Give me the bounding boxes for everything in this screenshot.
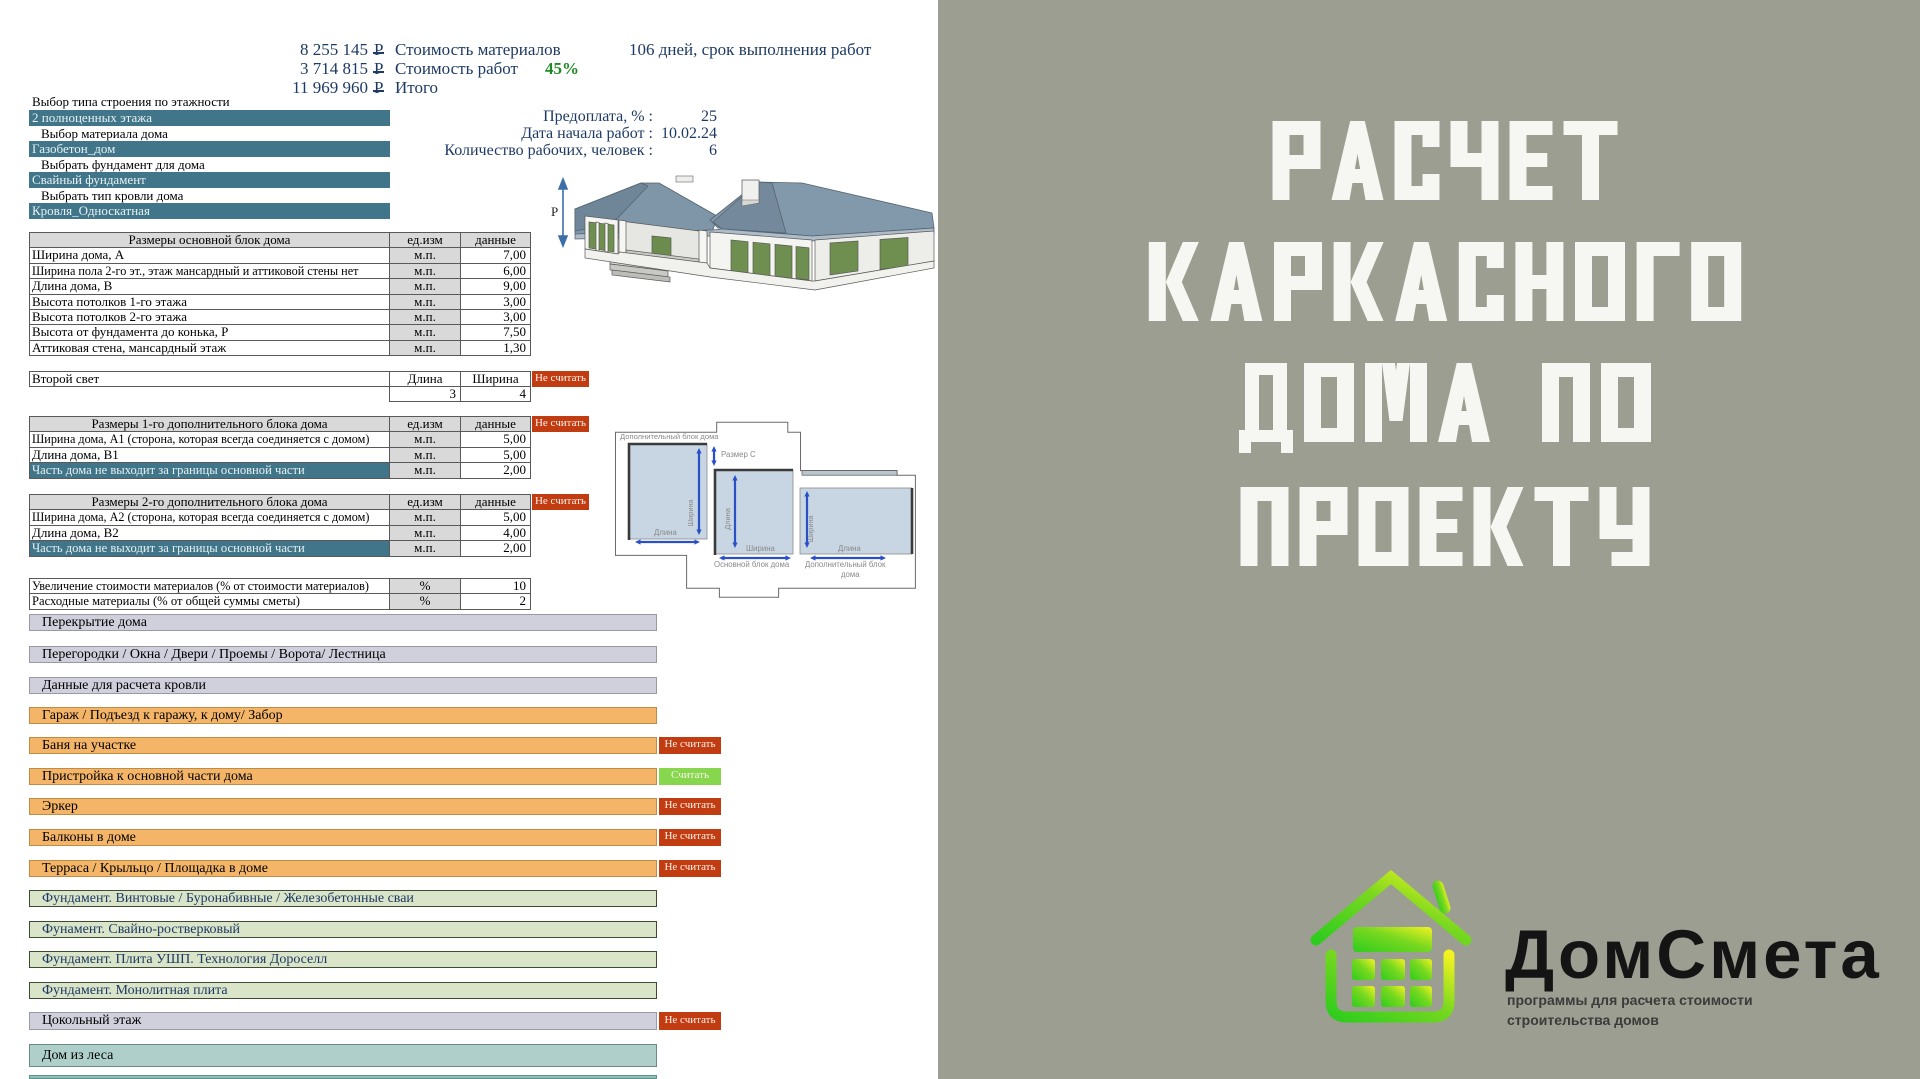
- svg-text:Размер С: Размер С: [721, 450, 756, 459]
- svg-text:Ширина: Ширина: [746, 544, 775, 553]
- svg-text:Длина: Длина: [654, 528, 677, 537]
- svg-text:дома: дома: [841, 570, 860, 579]
- svg-text:Дополнительный блок: Дополнительный блок: [805, 560, 886, 569]
- svg-text:Дополнительный блок дома: Дополнительный блок дома: [620, 432, 719, 441]
- svg-text:Р: Р: [551, 204, 558, 219]
- svg-text:Длина: Длина: [838, 544, 861, 553]
- svg-text:Ширина: Ширина: [806, 514, 815, 542]
- svg-text:Основной блок дома: Основной блок дома: [714, 560, 790, 569]
- svg-text:Ширина: Ширина: [686, 498, 695, 526]
- svg-text:Длина: Длина: [723, 507, 732, 530]
